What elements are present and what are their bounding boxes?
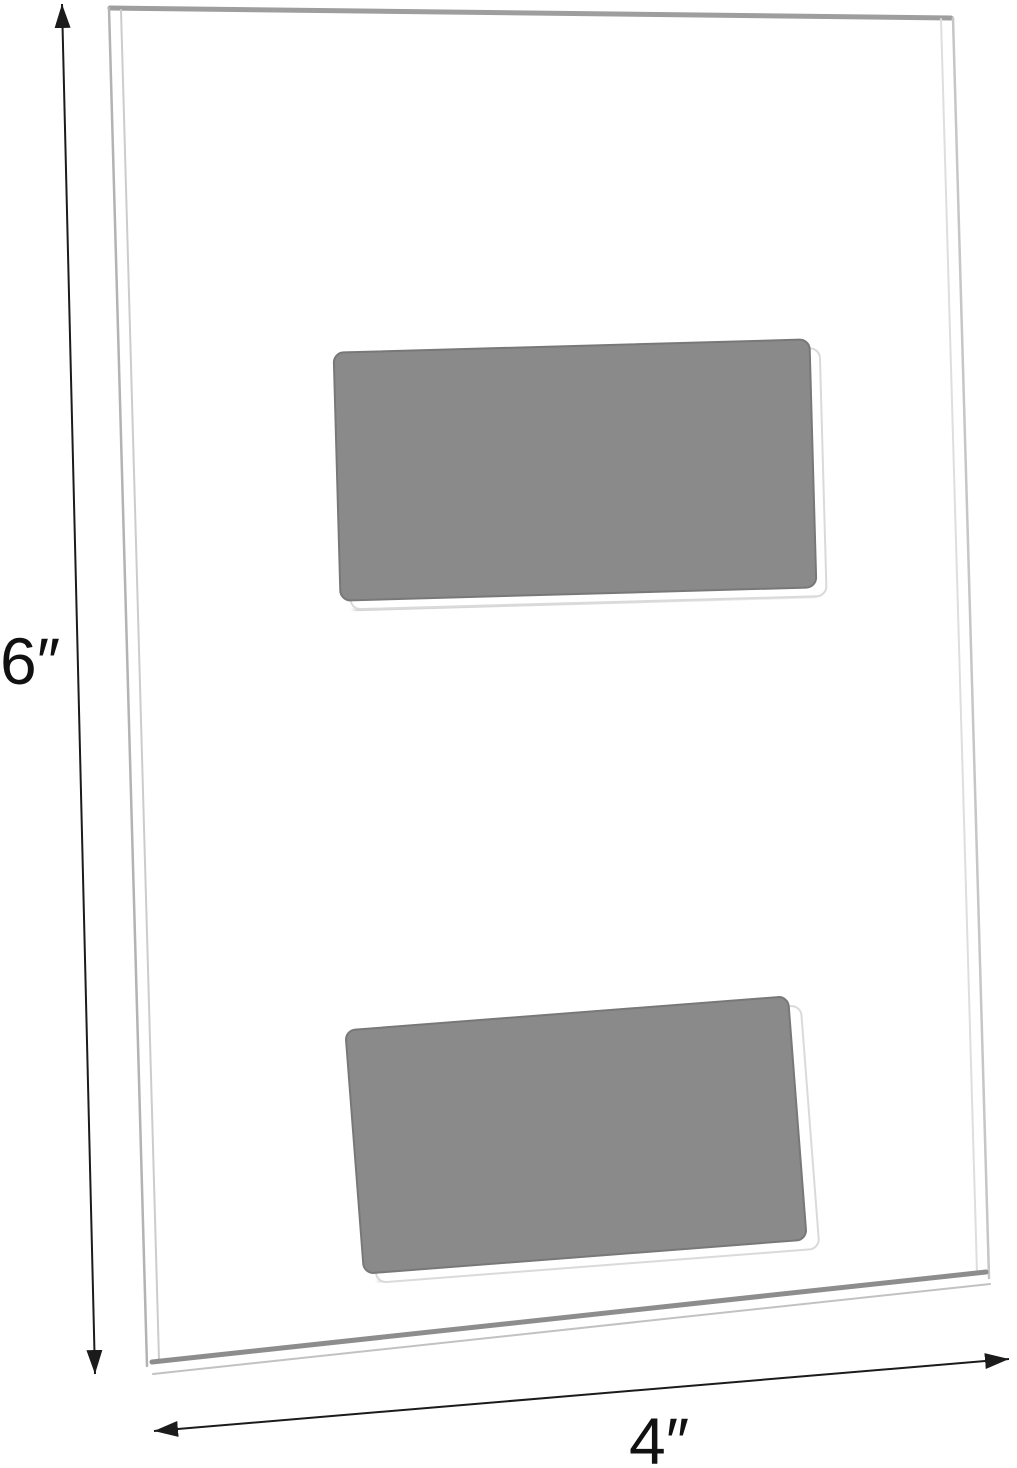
height-dimension-arrow xyxy=(62,4,95,1374)
adhesive-pad-top-group xyxy=(334,339,827,610)
width-dimension-label: 4″ xyxy=(629,1404,689,1468)
adhesive-pad-bottom-group xyxy=(345,995,819,1283)
product-dimension-diagram: 6″ 4″ xyxy=(0,0,1017,1468)
height-dimension-label: 6″ xyxy=(0,624,60,698)
adhesive-pad-bottom xyxy=(345,996,806,1273)
adhesive-pad-top xyxy=(334,339,817,600)
diagram-canvas: 6″ 4″ xyxy=(0,0,1017,1468)
width-dimension: 4″ xyxy=(154,1359,1009,1468)
height-dimension: 6″ xyxy=(0,4,95,1374)
width-dimension-arrow xyxy=(154,1359,1009,1431)
